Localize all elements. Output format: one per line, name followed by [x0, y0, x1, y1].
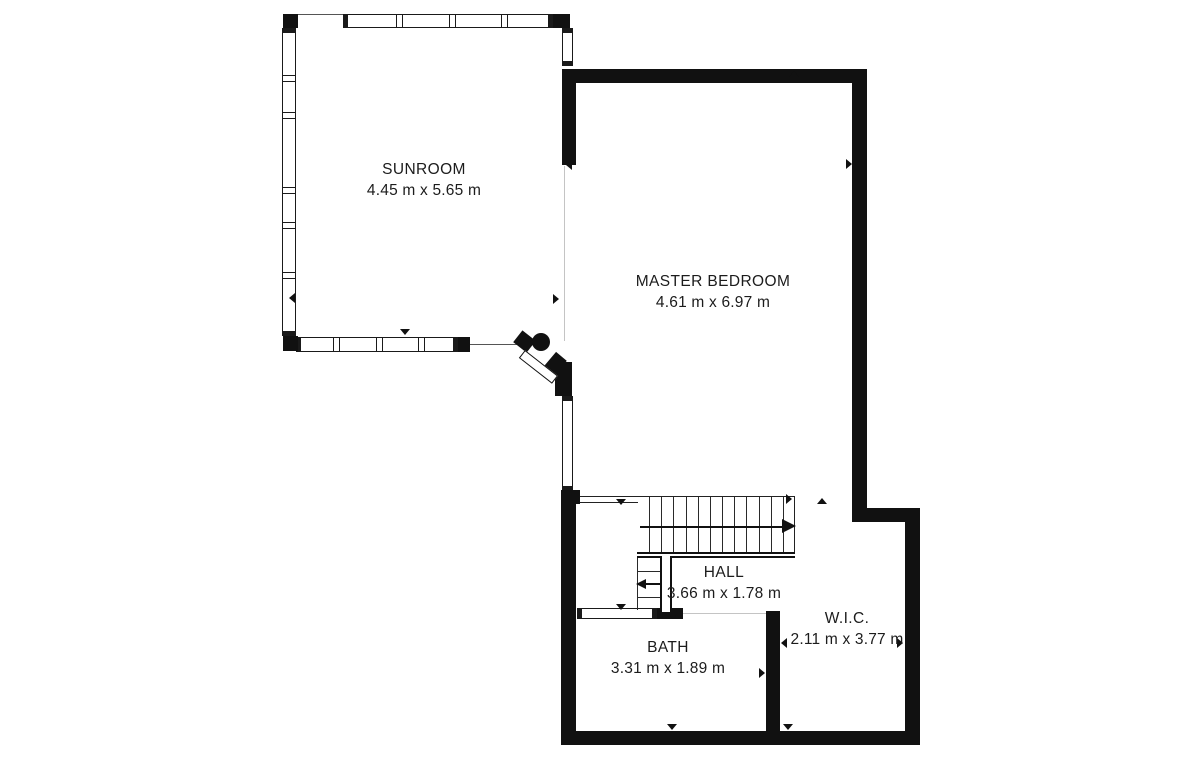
window-mullion [449, 15, 456, 27]
dimension-marker-up [789, 71, 799, 77]
stair-tread [698, 497, 699, 552]
dimension-marker-left [566, 668, 572, 678]
room-dimensions: 4.61 m x 6.97 m [636, 292, 791, 313]
sunroom-top-edge [290, 14, 344, 15]
room-name: SUNROOM [367, 159, 481, 180]
master-west-wall [562, 69, 576, 165]
room-name: HALL [667, 562, 781, 583]
room-label-wic: W.I.C. 2.11 m x 3.77 m [791, 608, 904, 650]
room-label-bath: BATH 3.31 m x 1.89 m [611, 637, 725, 679]
room-label-sunroom: SUNROOM 4.45 m x 5.65 m [367, 159, 481, 201]
window-cap [563, 61, 572, 65]
dimension-marker-right [553, 294, 559, 304]
stair-tread [637, 597, 660, 598]
room-dimensions: 4.45 m x 5.65 m [367, 180, 481, 201]
stair-tread [637, 571, 660, 572]
room-name: MASTER BEDROOM [636, 271, 791, 292]
stair-tread [734, 497, 735, 552]
stair-tread [673, 497, 674, 552]
dimension-marker-down [667, 724, 677, 730]
wic-east-wall [905, 508, 920, 745]
window-cap [563, 29, 572, 33]
room-name: BATH [611, 637, 725, 658]
dimension-marker-down [616, 499, 626, 505]
room-label-master-bedroom: MASTER BEDROOM 4.61 m x 6.97 m [636, 271, 791, 313]
master-east-wall [852, 69, 867, 522]
dimension-marker-left [566, 160, 572, 170]
dimension-marker-right [759, 668, 765, 678]
south-wall [561, 731, 920, 745]
hall-top-line-2 [577, 502, 638, 503]
stair-tread [710, 497, 711, 552]
stair-tread [771, 497, 772, 552]
bath-door-opening [683, 613, 766, 614]
window-cap [453, 338, 457, 351]
stair-tread [722, 497, 723, 552]
hall-corner-block [561, 490, 580, 504]
window-cap [283, 331, 295, 335]
dimension-marker-down [400, 329, 410, 335]
stairs-down-arrow-head [636, 579, 646, 589]
window-mullion [501, 15, 508, 27]
sunroom-window-bottom [296, 337, 458, 352]
sunroom-window-end [458, 337, 470, 352]
window-cap [283, 29, 295, 33]
window-cap [563, 397, 572, 401]
window-mullion [283, 222, 295, 229]
window-mullion [396, 15, 403, 27]
dimension-marker-right [786, 494, 792, 504]
master-top-wall [562, 69, 867, 83]
master-west-window [562, 396, 573, 491]
window-mullion [376, 338, 383, 351]
room-label-hall: HALL 3.66 m x 1.78 m [667, 562, 781, 604]
sunroom-window-top [343, 14, 553, 28]
stair-tread [649, 497, 650, 552]
stairs-up-arrow-head [782, 519, 796, 533]
stair-tread [661, 497, 662, 552]
sunroom-corner-bl [283, 336, 298, 351]
window-mullion [283, 112, 295, 119]
door-knob [532, 333, 550, 351]
window-cap [652, 609, 656, 618]
window-cap [548, 15, 552, 27]
dimension-marker-left [289, 293, 295, 303]
door-opening-line [470, 344, 517, 345]
window-mullion [418, 338, 425, 351]
stair-tread [746, 497, 747, 552]
sunroom-window-left [282, 28, 296, 336]
window-mullion [333, 338, 340, 351]
room-dimensions: 3.66 m x 1.78 m [667, 583, 781, 604]
stairs-down-arrow-shaft [646, 583, 662, 585]
stair-tread [759, 497, 760, 552]
dimension-marker-right [846, 159, 852, 169]
window-mullion [283, 75, 295, 82]
sunroom-corner-tl [283, 14, 298, 28]
floor-plan [0, 0, 1200, 768]
stair-tread [686, 497, 687, 552]
sunroom-window-right [562, 28, 573, 66]
dimension-marker-left [567, 524, 573, 534]
stairs-up-arrow-shaft [640, 526, 784, 528]
dimension-marker-left [781, 638, 787, 648]
window-cap [344, 15, 348, 27]
dimension-marker-down [783, 724, 793, 730]
master-open-boundary [564, 166, 565, 341]
dimension-marker-down [668, 613, 678, 619]
room-name: W.I.C. [791, 608, 904, 629]
sunroom-corner-tr [553, 14, 570, 28]
window-mullion [283, 187, 295, 194]
floor-plan-canvas: SUNROOM 4.45 m x 5.65 m MASTER BEDROOM 4… [0, 0, 1200, 768]
dimension-marker-up [817, 498, 827, 504]
window-cap [578, 609, 582, 618]
room-dimensions: 3.31 m x 1.89 m [611, 658, 725, 679]
bath-east-wall [766, 611, 780, 735]
dimension-marker-down [616, 604, 626, 610]
room-dimensions: 2.11 m x 3.77 m [791, 629, 904, 650]
window-mullion [283, 272, 295, 279]
